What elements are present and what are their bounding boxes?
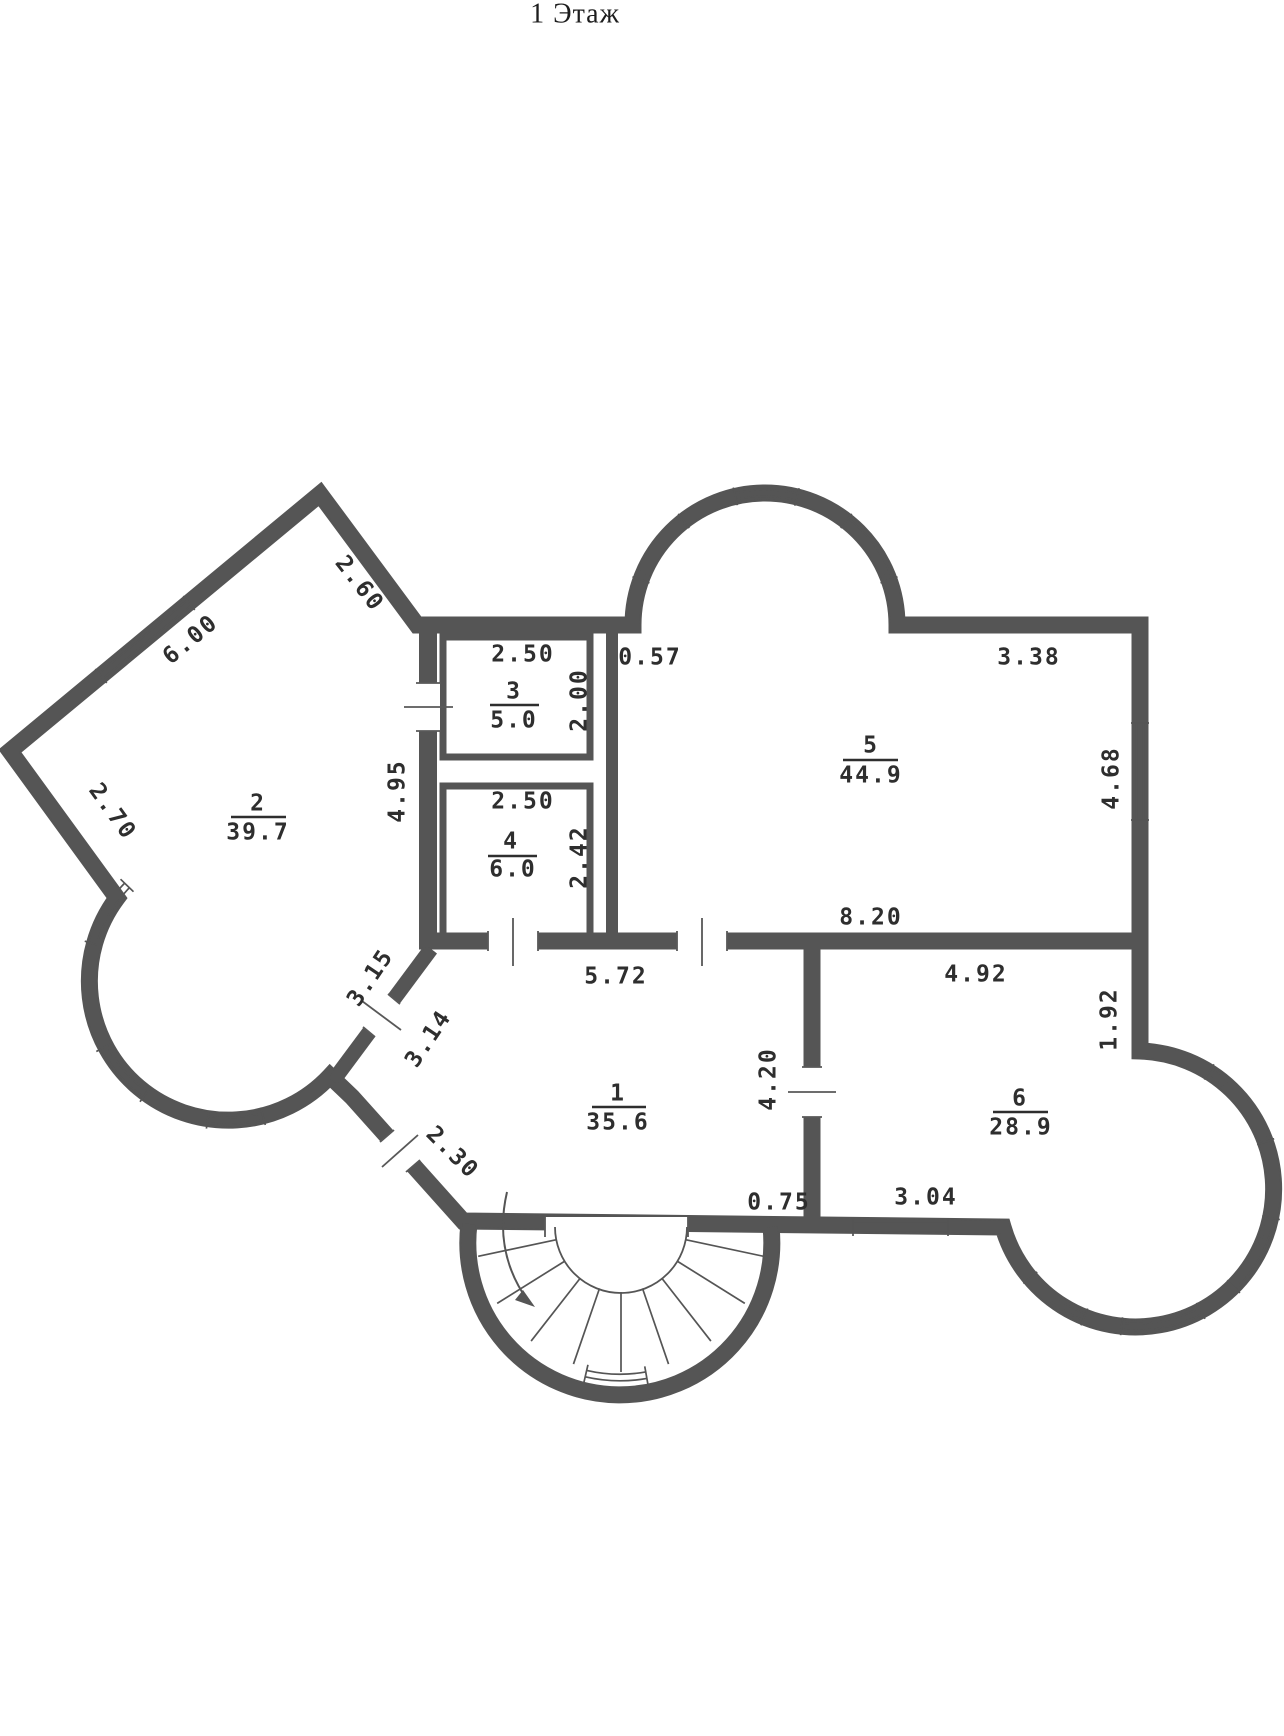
dim-room5-top-left: 0.57 (618, 645, 681, 671)
dim-room6-top: 4.92 (944, 962, 1007, 988)
door-room1-room6 (788, 1067, 836, 1117)
door-room4 (488, 918, 538, 966)
stair-tread (497, 1261, 565, 1303)
room-4-area: 6.0 (489, 857, 537, 883)
door-room5-room1 (677, 918, 727, 966)
stair-opening (545, 1217, 688, 1237)
dim-room6-bottom: 3.04 (894, 1185, 957, 1211)
door-exterior-2-30 (380, 1130, 420, 1172)
dim-room3-height: 2.00 (567, 668, 593, 731)
room-6-area: 28.9 (989, 1115, 1052, 1141)
room-5-number: 5 (863, 733, 879, 759)
room-6-number: 6 (1012, 1086, 1028, 1112)
room-labels: 1 35.6 2 39.7 3 5.0 4 6.0 5 44.9 6 28.9 (226, 679, 1052, 1141)
room-5-label: 5 44.9 (839, 733, 902, 789)
dim-room5-bottom: 8.20 (839, 905, 902, 931)
dim-room4-width: 2.50 (491, 789, 554, 815)
dim-room5-top-right: 3.38 (997, 645, 1060, 671)
room-1-area: 35.6 (586, 1110, 649, 1136)
window-glass-arc (587, 1370, 646, 1374)
stair-tread (478, 1240, 556, 1257)
room-3-label: 3 5.0 (490, 679, 539, 734)
page-title: 1 Этаж (530, 0, 620, 29)
stair-tread (677, 1261, 745, 1303)
room-1-label: 1 35.6 (586, 1081, 649, 1136)
dim-room5-right-wall: 4.68 (1099, 746, 1125, 809)
room-2-area: 39.7 (226, 820, 289, 846)
window-end-tick (645, 1366, 648, 1384)
stair-tread (642, 1288, 668, 1364)
dim-room1-room6-wall: 4.20 (756, 1047, 782, 1110)
dim-left-wall: 2.70 (83, 778, 141, 845)
dim-room6-right-wall: 1.92 (1097, 987, 1123, 1050)
dim-room1-left-lower: 3.14 (400, 1005, 457, 1072)
room-4-number: 4 (503, 829, 519, 855)
dim-room2-right-wall: 4.95 (385, 759, 411, 822)
floor-plan-svg: 1 Этаж (0, 0, 1284, 1736)
dim-room1-top: 5.72 (584, 964, 647, 990)
room-6-label: 6 28.9 (989, 1086, 1052, 1141)
window-end-tick (584, 1365, 588, 1383)
stair-arrow-head (515, 1290, 535, 1307)
dim-room1-bottom-right: 0.75 (747, 1190, 810, 1216)
dim-room4-height: 2.42 (567, 825, 593, 888)
stair-tread (531, 1278, 580, 1341)
room-3-area: 5.0 (490, 708, 538, 734)
room-2-label: 2 39.7 (226, 791, 289, 846)
stair-tread (662, 1278, 711, 1341)
window-glass-arc (585, 1377, 647, 1381)
room-5-area: 44.9 (839, 763, 902, 789)
room-1-number: 1 (610, 1081, 626, 1107)
floor-plan-page: 1 Этаж (0, 0, 1284, 1736)
dim-room3-width: 2.50 (491, 642, 554, 668)
stair-tread (686, 1240, 764, 1257)
room-2-number: 2 (250, 791, 266, 817)
room-3-number: 3 (506, 679, 522, 705)
stair-tread (573, 1288, 599, 1364)
room-4-label: 4 6.0 (488, 829, 537, 883)
